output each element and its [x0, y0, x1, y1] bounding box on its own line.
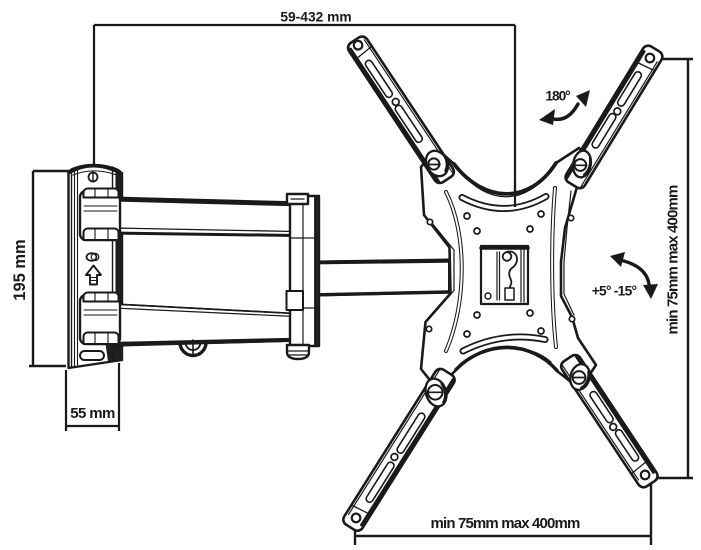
svg-text:180°: 180° [545, 89, 570, 104]
svg-text:59-432 mm: 59-432 mm [280, 10, 351, 25]
svg-text:min 75mm max 400mm: min 75mm max 400mm [431, 515, 580, 532]
svg-text:min 75mm max 400mm: min 75mm max 400mm [665, 185, 682, 334]
svg-text:55 mm: 55 mm [70, 405, 115, 422]
svg-text:195 mm: 195 mm [11, 239, 29, 300]
svg-text:+5° -15°: +5° -15° [592, 284, 637, 299]
